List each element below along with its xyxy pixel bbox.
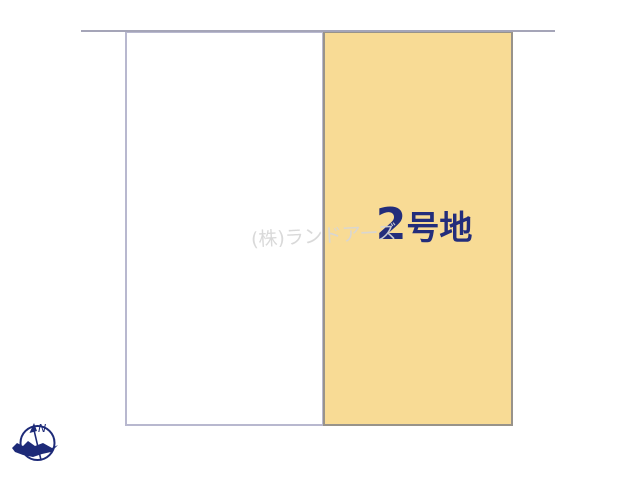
lot-plan-canvas: 2号地 (株)ランドアーズ N <box>0 0 640 480</box>
lot-1-parcel <box>125 31 324 426</box>
lot-2-number: 2 <box>376 199 407 250</box>
lot-2-label: 2号地 <box>323 203 513 247</box>
north-compass-icon: N <box>10 419 66 467</box>
compass-n-letter: N <box>38 422 46 435</box>
road-boundary-line <box>81 30 555 32</box>
lot-2-suffix: 号地 <box>406 208 472 247</box>
